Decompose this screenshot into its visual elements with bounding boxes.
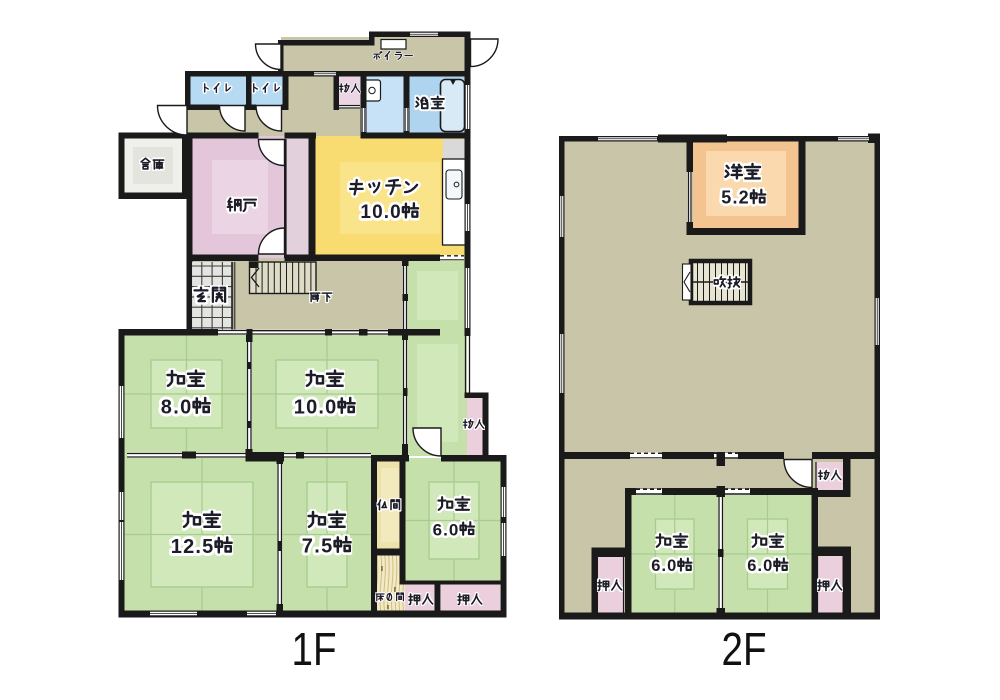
svg-text:7.5: 7.5 <box>302 535 332 557</box>
svg-text:8.0: 8.0 <box>161 396 191 418</box>
svg-text:12.5: 12.5 <box>171 536 213 558</box>
svg-text:6.0: 6.0 <box>651 557 676 575</box>
svg-text:10.0: 10.0 <box>360 202 400 223</box>
svg-text:10.0: 10.0 <box>294 396 336 418</box>
svg-text:6.0: 6.0 <box>747 557 772 575</box>
svg-text:2F: 2F <box>722 623 767 675</box>
svg-text:6.0: 6.0 <box>433 520 459 539</box>
svg-text:1F: 1F <box>292 623 337 675</box>
svg-text:5.2: 5.2 <box>721 188 748 208</box>
